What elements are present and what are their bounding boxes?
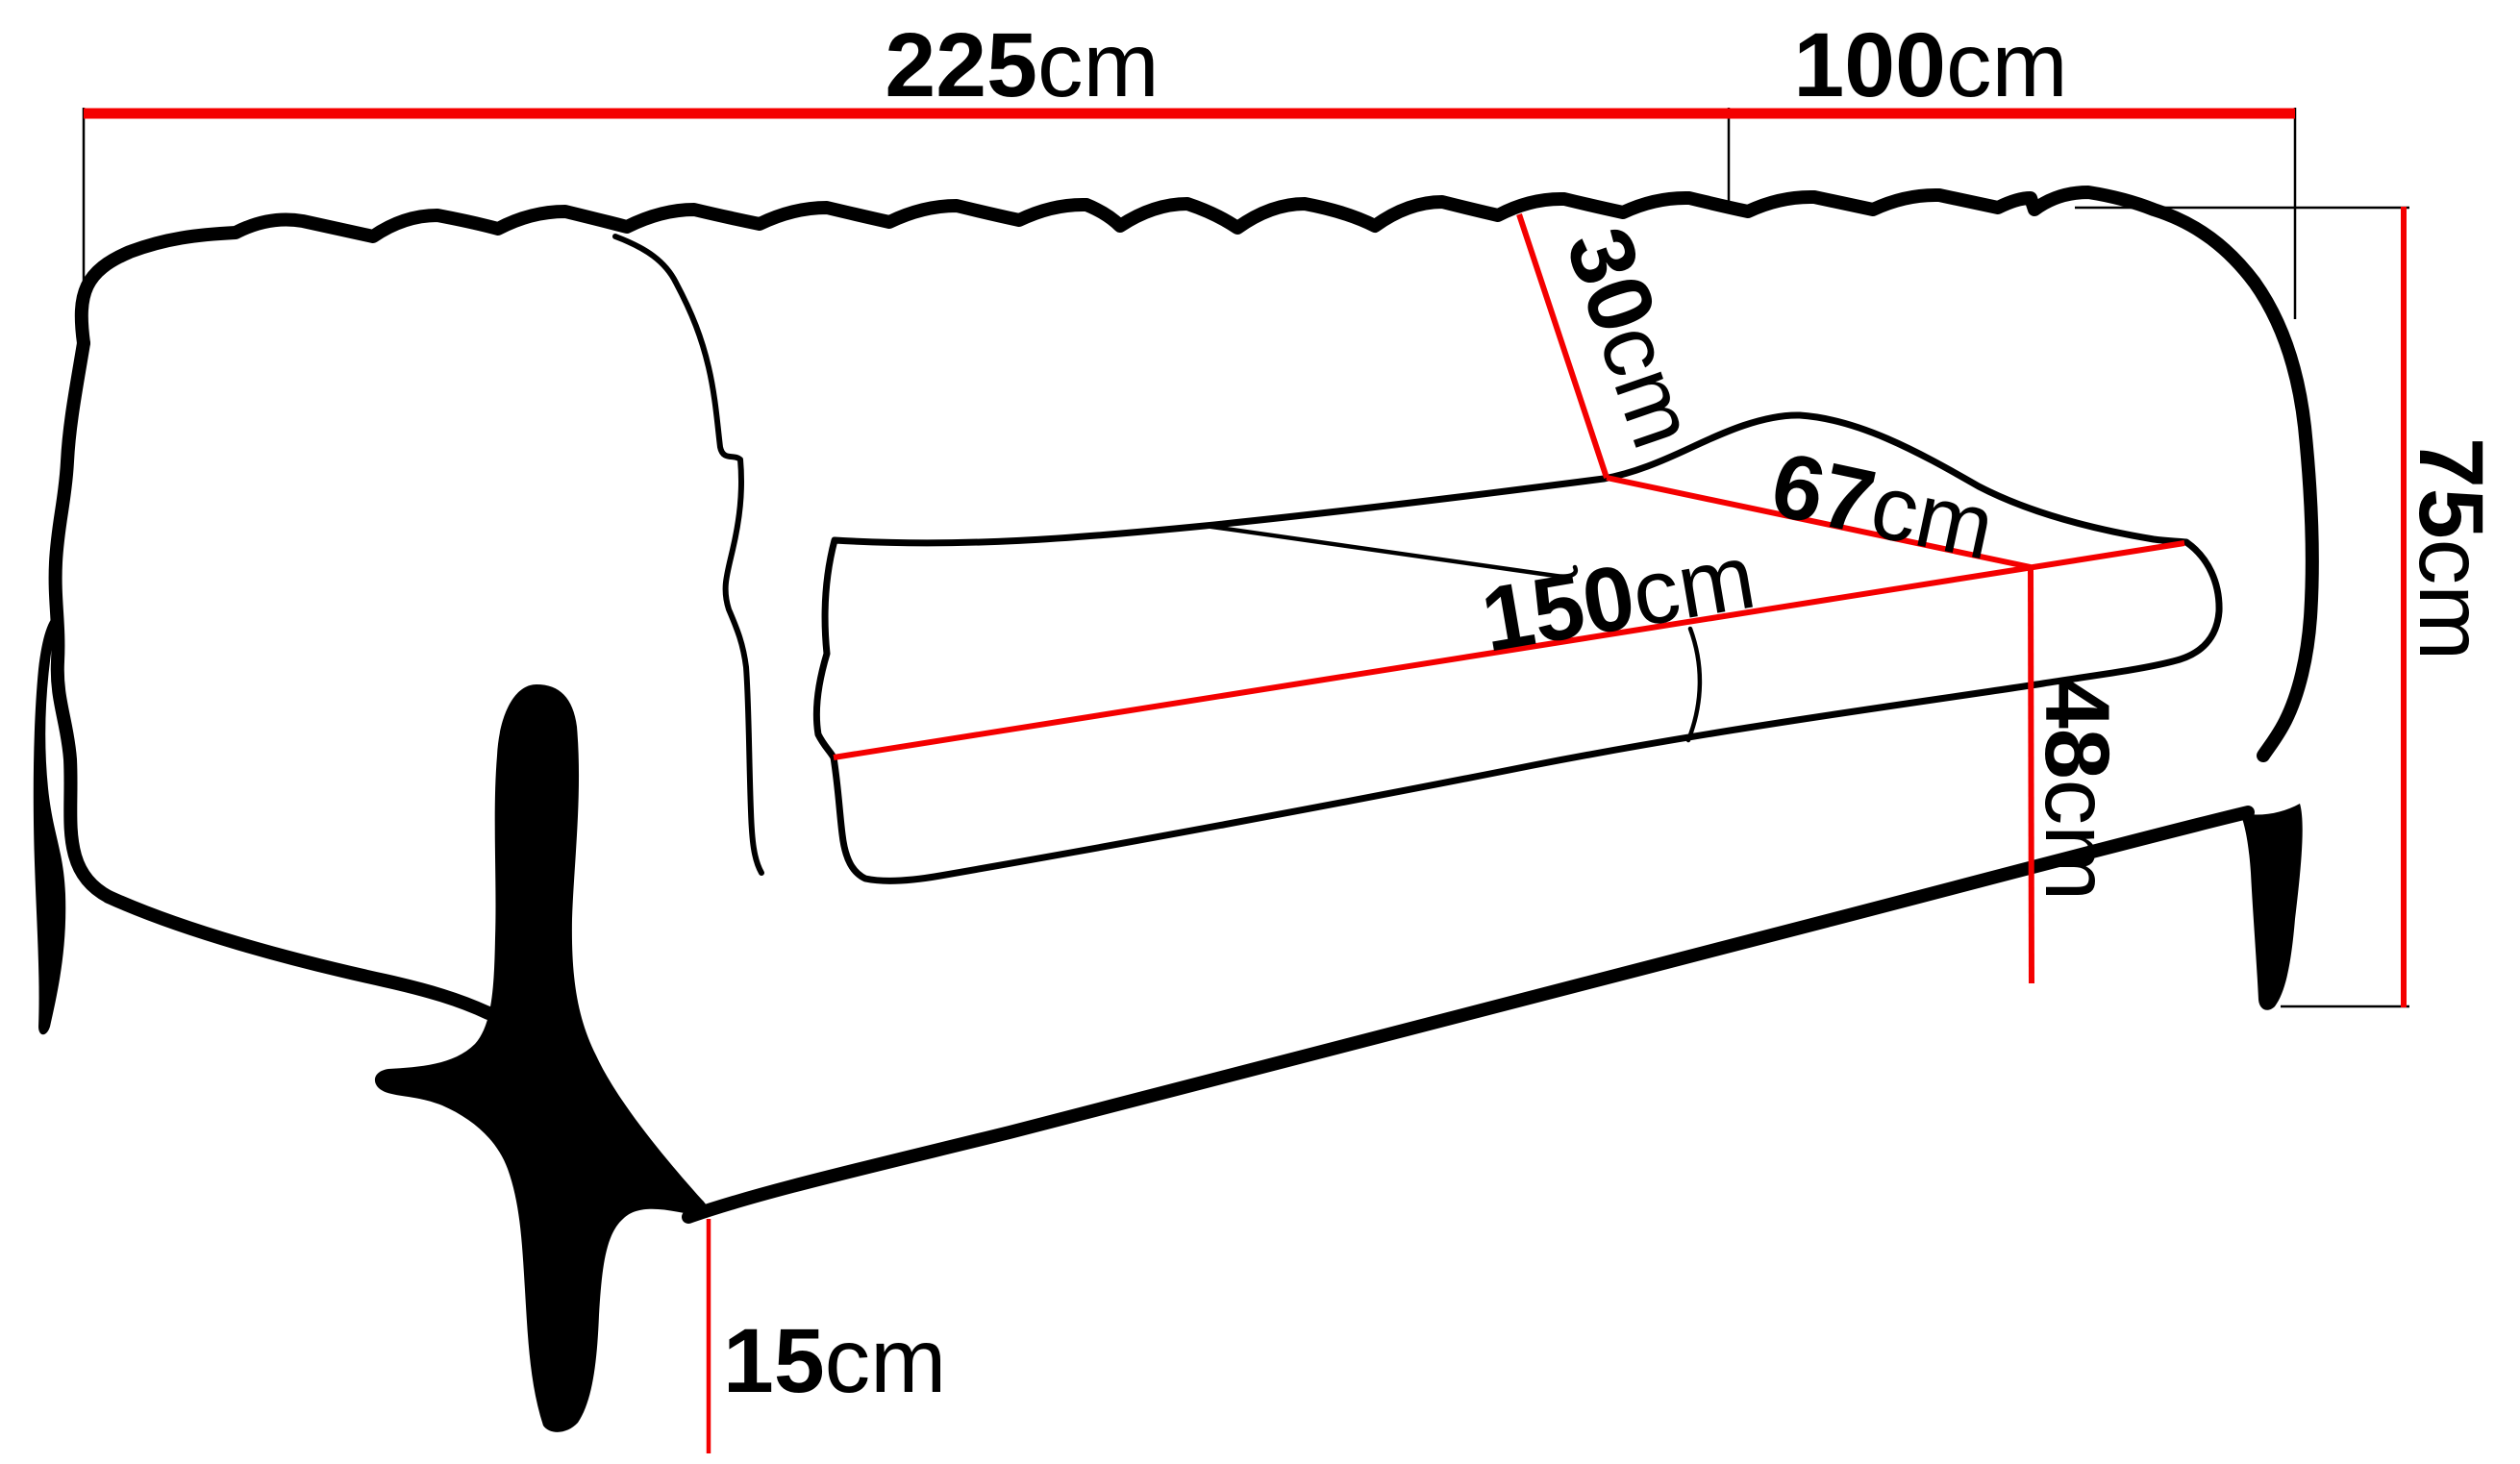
overall-height-value: 75 [2400, 437, 2502, 539]
dim-label-seat-height: 48cm [2026, 678, 2128, 901]
seat-width-unit: cm [1625, 526, 1762, 647]
leg-height-unit: cm [825, 1310, 947, 1412]
dim-label-overall-depth: 100cm [1793, 14, 2067, 116]
diagram-canvas: 225cm 100cm 75cm 30cm 67cm 150cm 48cm 15… [0, 0, 2520, 1464]
overall-depth-unit: cm [1946, 14, 2068, 116]
leg-height-value: 15 [723, 1310, 825, 1412]
seat-height-unit: cm [2026, 780, 2128, 902]
overall-height-unit: cm [2400, 539, 2502, 661]
dim-label-leg-height: 15cm [723, 1310, 946, 1412]
overall-depth-value: 100 [1793, 14, 1946, 116]
overall-width-unit: cm [1037, 14, 1160, 116]
dim-label-overall-height: 75cm [2400, 437, 2502, 660]
seat-height-value: 48 [2026, 678, 2128, 780]
sofa-dimension-diagram: 225cm 100cm 75cm 30cm 67cm 150cm 48cm 15… [0, 0, 2520, 1464]
dim-label-overall-width: 225cm [885, 14, 1159, 116]
overall-width-value: 225 [885, 14, 1037, 116]
